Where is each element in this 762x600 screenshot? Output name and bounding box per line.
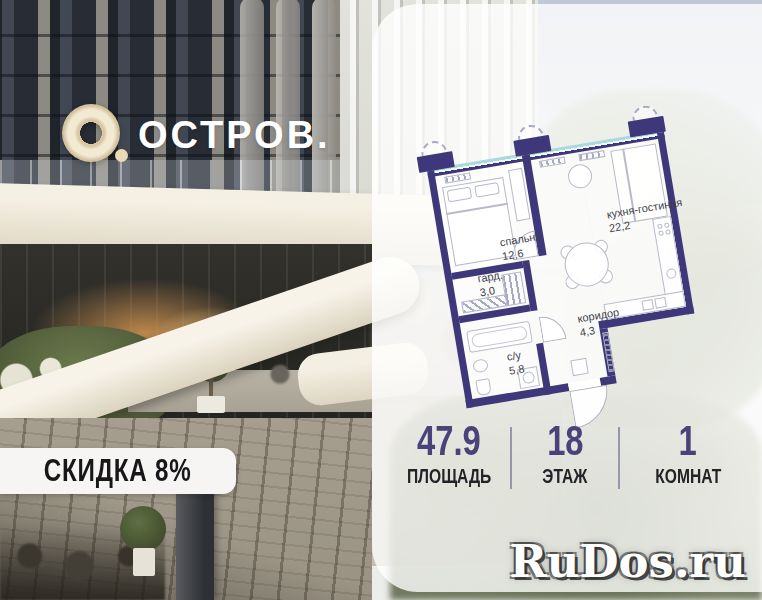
stat-floor-value: 18 [547,420,583,462]
apartment-stats: 47.9 ПЛОЩАДЬ 18 ЭТАЖ 1 КОМНАТ [388,420,756,496]
stat-area-label: ПЛОЩАДЬ [407,465,491,487]
floor-plan: кухня-гостиная 22,2 спальня 12,6 гард. 3… [425,116,708,432]
brand-name: ОСТРОВ. [138,114,331,157]
brand-logo: ОСТРОВ. [62,104,362,168]
logo-ring-icon [62,104,120,162]
stat-area: 47.9 ПЛОЩАДЬ [388,420,510,496]
sink-bowl [654,297,666,309]
watermark: RuDos.ru [509,535,746,588]
discount-badge: СКИДКА 8% [0,448,236,494]
stat-floor-label: ЭТАЖ [542,465,587,487]
room-area: 4,3 [579,324,596,340]
stat-floor: 18 ЭТАЖ [512,420,618,496]
stat-area-value: 47.9 [417,420,481,462]
logo-dot-icon [115,149,128,162]
stat-rooms-label: КОМНАТ [655,465,721,487]
sink-bowl [641,299,653,311]
potted-plant [120,506,166,552]
potted-plant [133,548,155,576]
wall-segment [600,375,617,386]
stat-rooms: 1 КОМНАТ [620,420,756,496]
tree-planter [197,396,225,413]
room-area: 3,0 [479,284,496,300]
room-area: 5,8 [508,362,525,378]
discount-badge-label: СКИДКА 8% [44,453,192,489]
cabinet-icon [570,358,588,376]
listing-ad: кухня-гостиная 22,2 спальня 12,6 гард. 3… [0,0,762,600]
stat-rooms-value: 1 [679,420,697,462]
